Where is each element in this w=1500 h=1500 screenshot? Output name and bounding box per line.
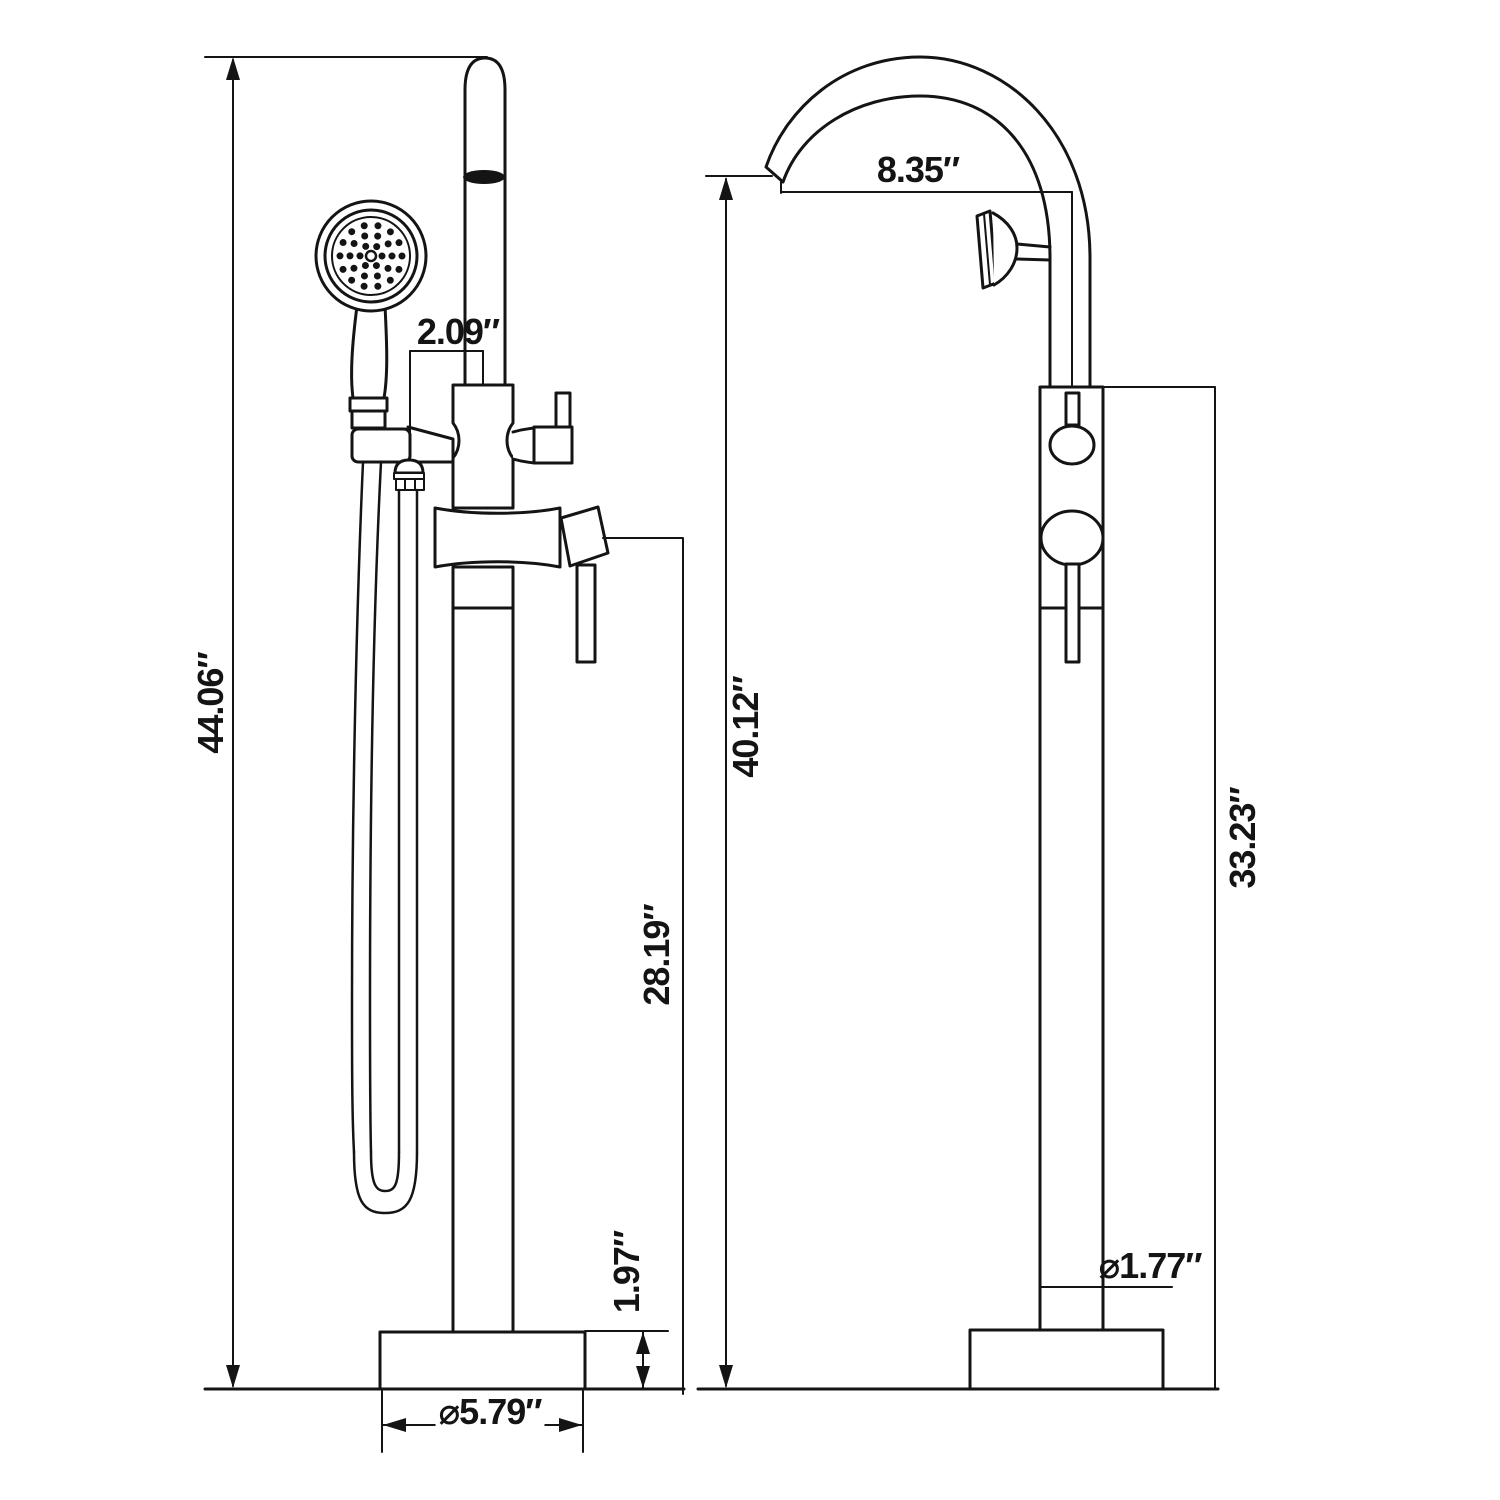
mixer-body: [435, 508, 560, 567]
lever-handle-bar: [577, 565, 595, 662]
spout-opening-band: [463, 170, 505, 184]
label-column-height: 33.23″: [1225, 787, 1261, 888]
lever-base-side: [1041, 511, 1103, 565]
arrow-down: [636, 1366, 650, 1388]
front-base: [380, 1332, 585, 1389]
label-pipe-diameter: ⌀1.77″: [1099, 1248, 1202, 1284]
front-view-drawing: [316, 58, 608, 1389]
arrow-up: [719, 177, 733, 200]
diverter-knob-side: [1050, 426, 1094, 464]
shower-stem: [1017, 244, 1050, 260]
label-overall-height: 44.06″: [193, 652, 229, 753]
label-hand-shower-offset: 2.09″: [417, 314, 499, 350]
lever-mount: [561, 507, 608, 566]
label-spout-reach: 8.35″: [877, 152, 959, 188]
arrow-left: [383, 1418, 406, 1432]
holder-arm: [408, 427, 453, 462]
label-base-diameter: ⌀5.79″: [436, 1394, 545, 1430]
dim-line-column-height: [1103, 387, 1215, 1389]
side-view-drawing: [766, 57, 1163, 1389]
label-spout-height: 40.12″: [728, 676, 764, 777]
hose-connector-dome: [395, 460, 423, 473]
arrow-down: [719, 1365, 733, 1388]
hand-shower-side-view: [977, 211, 1050, 288]
holder-bracket: [352, 429, 410, 462]
handle-ring-lower: [352, 411, 385, 428]
gooseneck-spout: [766, 57, 1090, 387]
faucet-dimension-drawing: 44.06″ 2.09″ 8.35″ 40.12″ 28.19″ 33.23″ …: [0, 0, 1500, 1500]
arrow-up: [636, 1332, 650, 1354]
upper-valve-body: [453, 385, 513, 508]
diverter-knob-side-stem: [1066, 393, 1079, 425]
support-column: [453, 567, 513, 1332]
diverter-block: [534, 427, 572, 463]
lever-bar-side: [1066, 564, 1079, 662]
hose-connector-nut: [396, 479, 424, 490]
shower-dome: [993, 213, 1017, 285]
label-handle-height: 28.19″: [639, 904, 675, 1005]
label-base-thickness: 1.97″: [609, 1231, 645, 1313]
diverter-neck: [513, 428, 534, 463]
arrow-down: [226, 1365, 240, 1388]
handle-ring-upper: [350, 398, 387, 411]
arrow-up: [226, 57, 240, 80]
diverter-knob-stem: [556, 393, 570, 427]
side-base: [970, 1330, 1163, 1389]
hand-shower-handle: [352, 306, 387, 398]
hand-shower-hose: [352, 462, 417, 1213]
arrow-right: [559, 1418, 582, 1432]
